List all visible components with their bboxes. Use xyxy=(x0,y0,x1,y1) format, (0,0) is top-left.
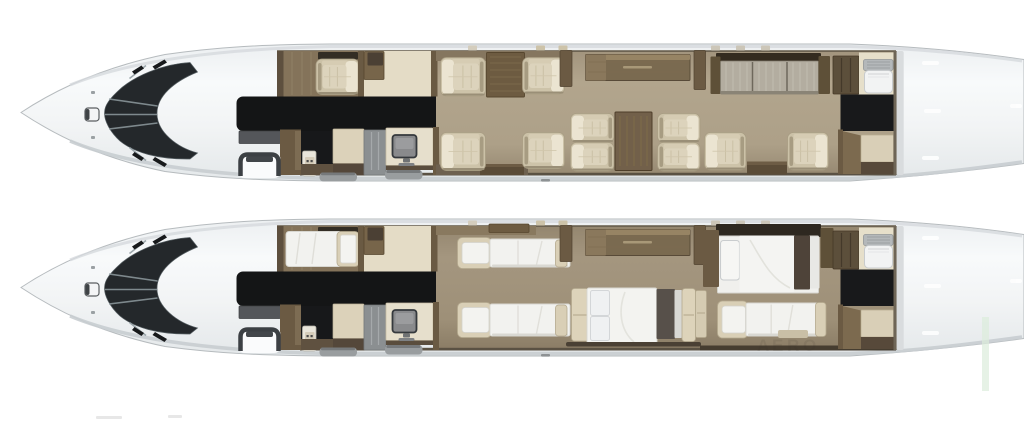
svg-text:O: O xyxy=(803,336,816,355)
svg-text:R: R xyxy=(787,336,799,355)
svg-text:E: E xyxy=(772,336,783,355)
svg-text:A: A xyxy=(757,336,769,355)
